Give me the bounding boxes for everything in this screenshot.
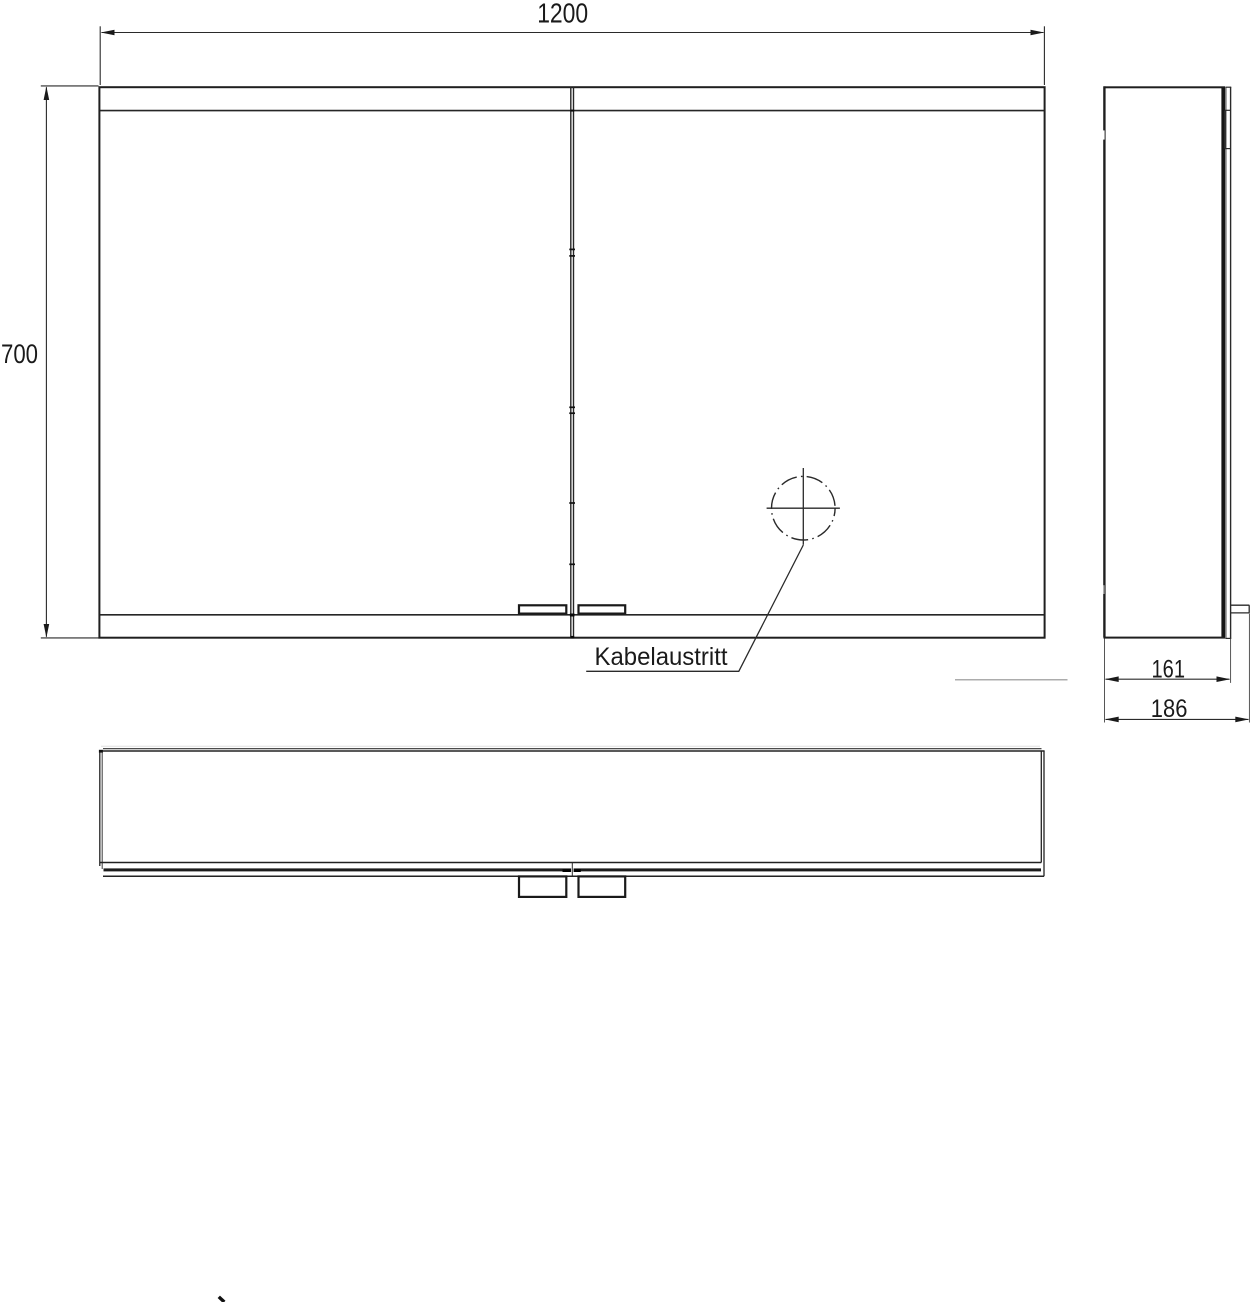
svg-text:186: 186 <box>1151 695 1188 723</box>
svg-text:1200: 1200 <box>537 0 588 29</box>
svg-text:Kabelaustritt: Kabelaustritt <box>595 643 728 671</box>
svg-text:161: 161 <box>1152 655 1186 683</box>
svg-text:700: 700 <box>1 339 38 369</box>
